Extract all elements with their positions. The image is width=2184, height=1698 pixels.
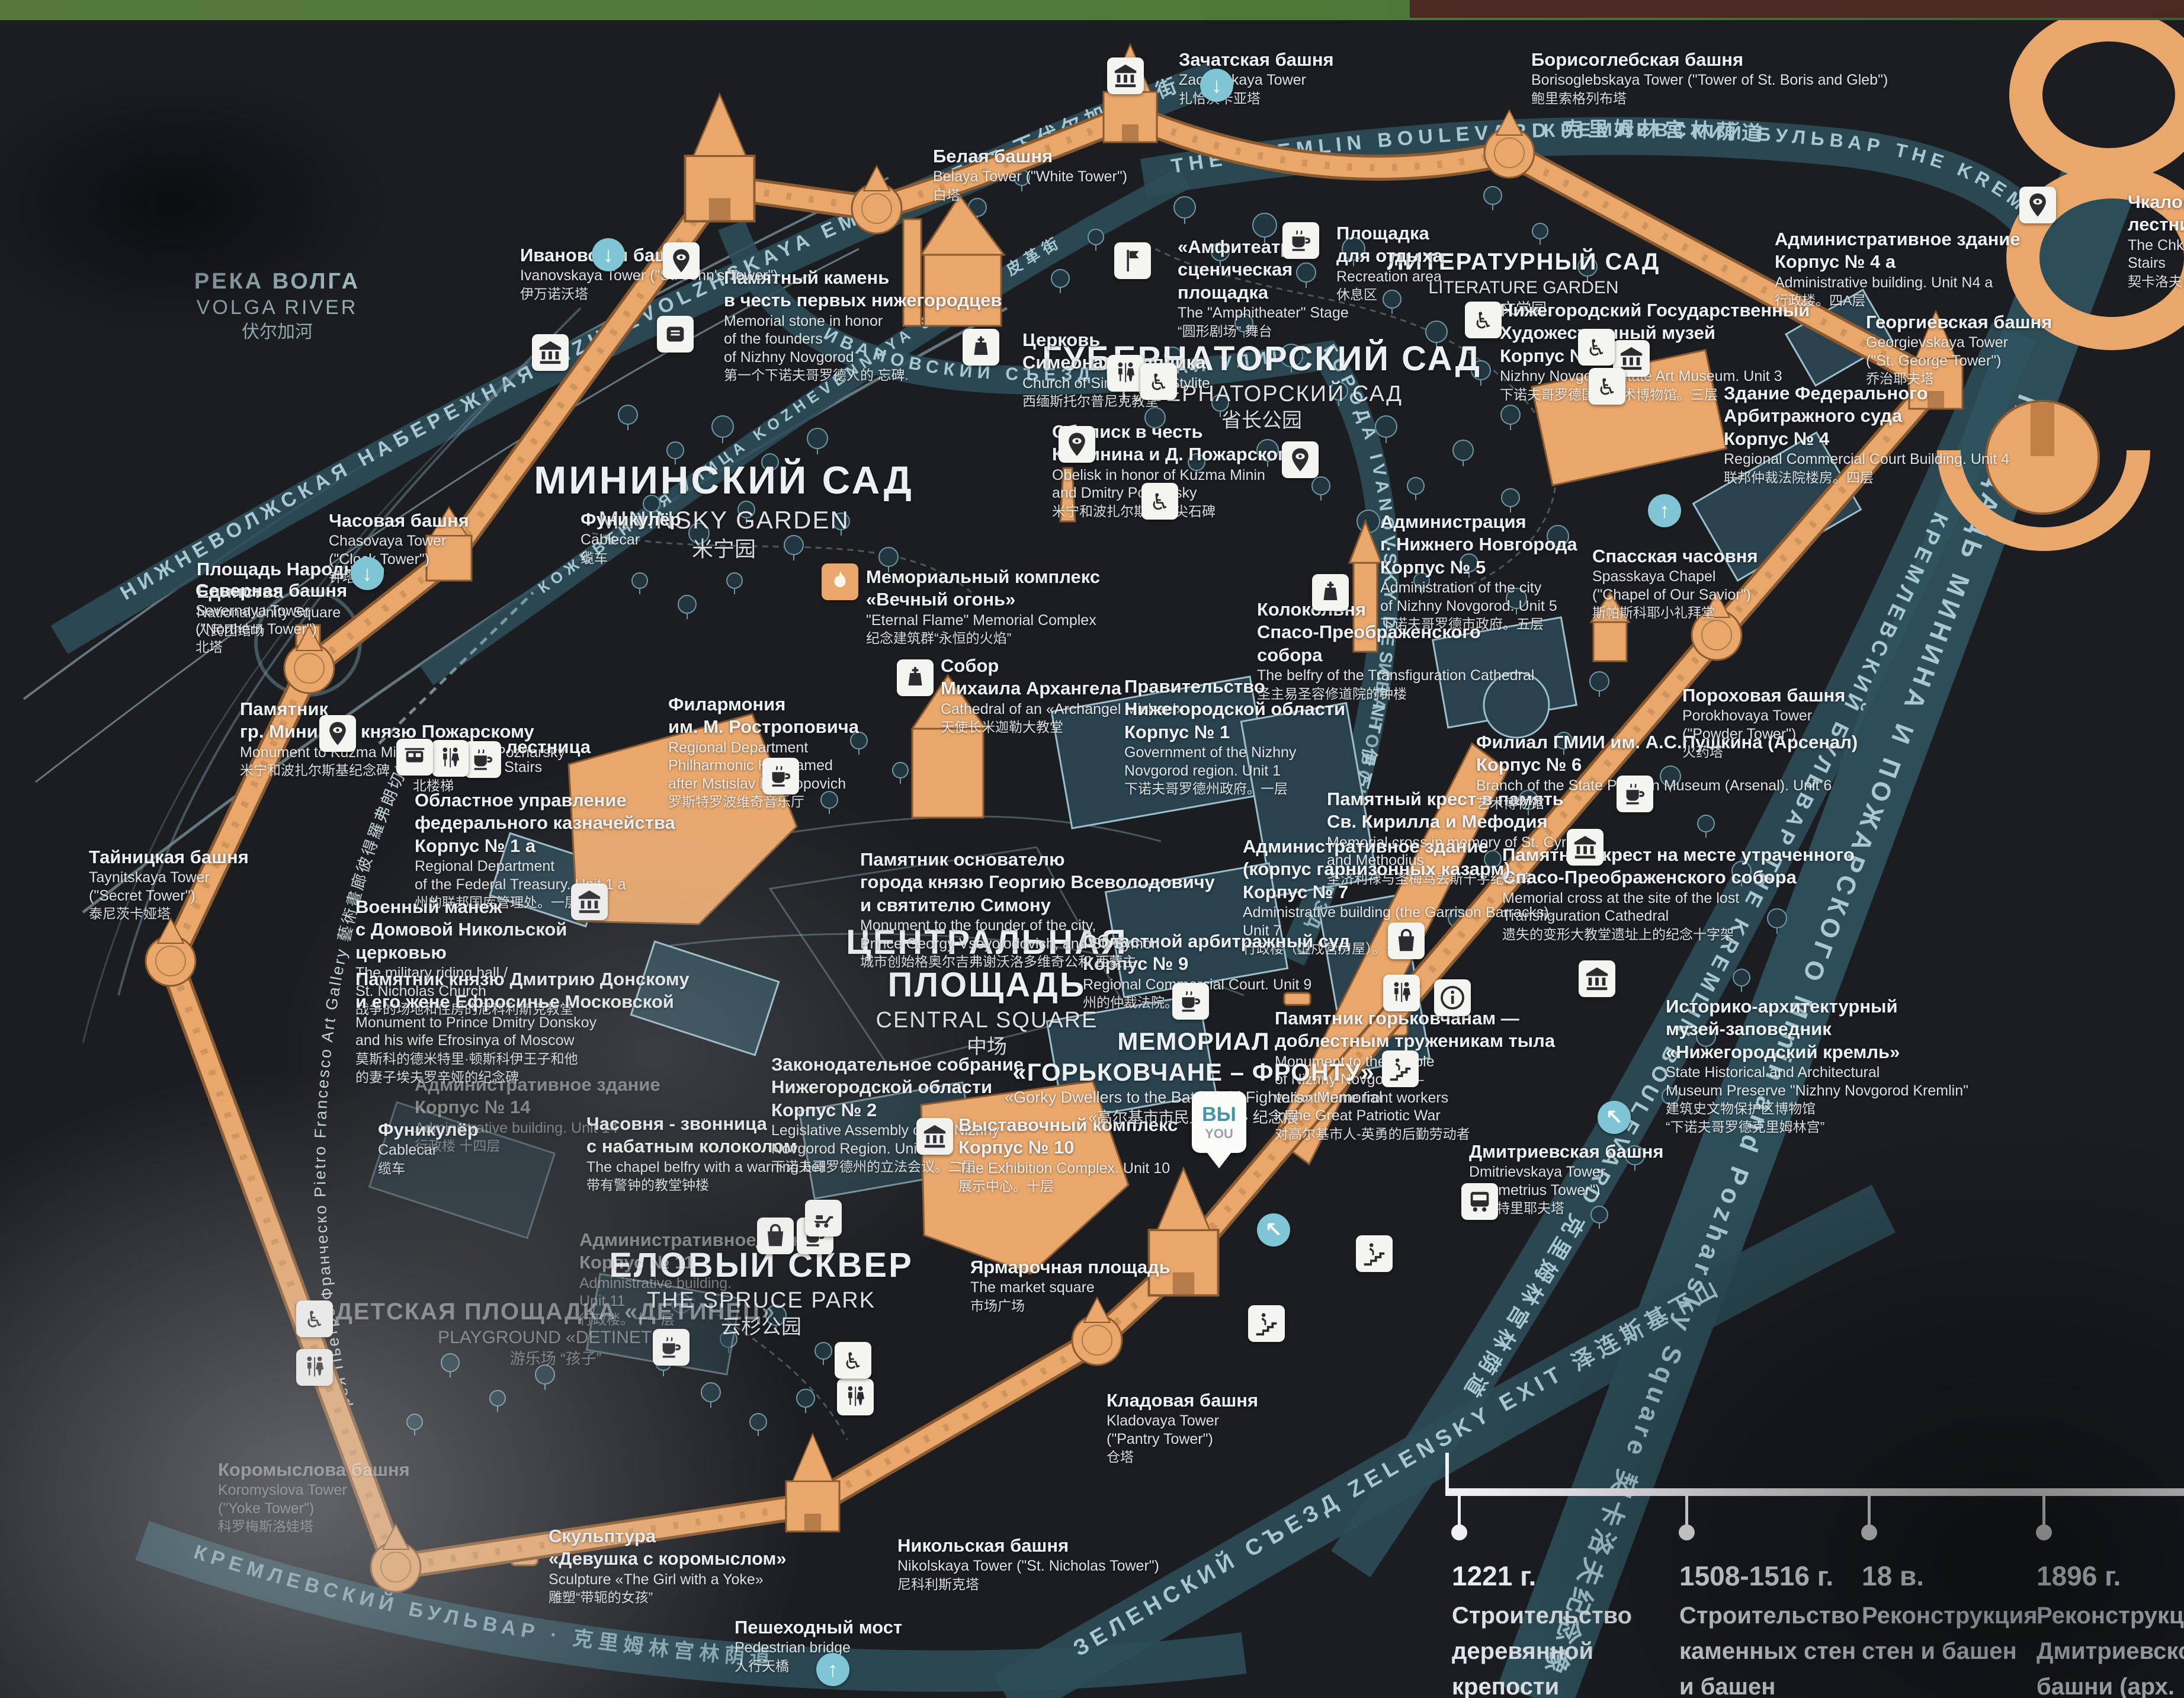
- label-spasskaya-chapel-en: Spasskaya Chapel ("Chapel of Our Savior"…: [1592, 568, 1758, 604]
- direction-arrow-icon: ↓: [351, 557, 384, 590]
- label-borisoglebskaya: Борисоглебская башняBorisoglebskaya Towe…: [1531, 49, 1888, 108]
- label-playground-detinets-zh: 游乐场 “孩子”: [335, 1348, 775, 1369]
- label-zachatskaya-ru: Зачатская башня: [1179, 49, 1334, 71]
- label-amphitheater-stage-en: The "Amphitheater" Stage: [1178, 304, 1349, 322]
- museum-icon: [1567, 829, 1603, 866]
- label-monument-donskoy: Памятник князю Дмитрию Донскому и его же…: [355, 968, 689, 1087]
- label-admin-building-14-ru: Административное здание Корпус № 14: [415, 1074, 660, 1119]
- label-pushkin-museum-branch-en: Branch of the State Pushkin Museum (Arse…: [1476, 777, 1858, 795]
- label-market-square-en: The market square: [970, 1279, 1170, 1297]
- label-belaya-ru: Белая башня: [933, 145, 1127, 168]
- pin-icon: [1059, 426, 1095, 463]
- label-porokhovaya: Пороховая башняPorokhovaya Tower ("Powde…: [1682, 684, 1845, 761]
- label-amphitheater-stage: «Амфитеатр» сценическая площадкаThe "Amp…: [1178, 236, 1349, 341]
- church-icon: [897, 659, 934, 696]
- label-philharmonic-rostropovich-zh: 罗斯特罗波维奇音乐厅: [668, 793, 859, 811]
- label-pedestrian-bridge-ru: Пешеходный мост: [735, 1616, 902, 1639]
- label-museum-preserve-kremlin: Историко-архитектурный музей-заповедник …: [1666, 995, 1968, 1136]
- label-dmitrievskaya-ru: Дмитриевская башня: [1469, 1140, 1664, 1163]
- label-government-unit1: Правительство Нижегородской области Корп…: [1124, 675, 1345, 798]
- label-funicular-lower: ФуникулёрCablecar缆车: [581, 508, 681, 568]
- label-sculpture-girl-yoke: Скульптура «Девушка с коромыслом»Sculptu…: [549, 1525, 787, 1607]
- bag-icon: [1388, 922, 1425, 959]
- pin-icon: [663, 242, 700, 279]
- wc-icon: [1107, 355, 1144, 392]
- label-federal-court-4-en: Regional Commercial Court Building. Unit…: [1724, 450, 2009, 469]
- cart-icon: [805, 1200, 842, 1236]
- label-admin-building-4a-ru: Административное здание Корпус № 4 а: [1775, 228, 2021, 274]
- wc-icon: [296, 1349, 333, 1386]
- label-chasovaya-ru: Часовая башня: [329, 510, 469, 532]
- label-recreation-area: Площадка для отдыхаRecreation area休息区: [1336, 222, 1443, 304]
- you-are-here-marker: ВЫ YOU: [1192, 1091, 1246, 1168]
- label-federal-court-4: Здание Федерального Арбитражного суда Ко…: [1724, 382, 2009, 487]
- label-federal-court-4-ru: Здание Федерального Арбитражного суда Ко…: [1724, 382, 2009, 450]
- label-funicular-lower-ru: Фуникулёр: [581, 508, 681, 531]
- label-koromyslova: Коромыслова башняKoromyslova Tower ("Yok…: [218, 1459, 410, 1536]
- cup-icon: [1282, 222, 1319, 259]
- label-monument-founder-zh: 城市创始格奥尔吉弗谢沃洛多维奇公和 西蒙主: [860, 953, 1215, 971]
- label-belaya-zh: 白塔: [933, 186, 1127, 204]
- label-government-unit1-en: Government of the Nizhny Novgorod region…: [1124, 744, 1345, 780]
- label-chasovaya: Часовая башняChasovaya Tower ("Clock Tow…: [329, 510, 469, 587]
- church-icon: [963, 329, 999, 366]
- label-funicular-upper-zh: 缆车: [378, 1159, 479, 1178]
- svg-text:♿: ♿: [843, 1348, 863, 1374]
- timeline-text: Строительство деревянной крепости: [1452, 1598, 1632, 1698]
- label-memorial-cross-lost-zh: 遗失的变形大教堂遗址上的纪念十字架: [1502, 925, 1855, 944]
- church-icon: [1312, 574, 1349, 611]
- cup-icon: [1617, 776, 1653, 812]
- label-belaya: Белая башняBelaya Tower ("White Tower")白…: [933, 145, 1127, 204]
- label-georgievskaya-zh: 乔治耶夫塔: [1866, 370, 2052, 388]
- label-pedestrian-bridge-en: Pedestrian bridge: [735, 1639, 902, 1657]
- label-georgievskaya-en: Georgievskaya Tower ("St. George Tower"): [1866, 334, 2052, 370]
- label-admin-building-4a: Административное здание Корпус № 4 аAdmi…: [1775, 228, 2021, 310]
- label-porokhovaya-en: Porokhovaya Tower ("Powder Tower"): [1682, 707, 1845, 743]
- direction-arrow-icon: ↑: [1648, 494, 1681, 527]
- label-volga-river-zh: 伏尔加河: [194, 321, 360, 345]
- label-kladovaya-ru: Кладовая башня: [1107, 1389, 1258, 1412]
- label-spasskaya-chapel: Спасская часовняSpasskaya Chapel ("Chape…: [1592, 545, 1758, 622]
- label-recreation-area-ru: Площадка для отдыха: [1336, 222, 1443, 268]
- museum-icon: [1579, 960, 1615, 997]
- info-icon: [1434, 979, 1471, 1016]
- person-stairs-icon: [1382, 1050, 1419, 1087]
- label-admin-building-14-en: Administrative building. Unit 14: [415, 1119, 660, 1138]
- person-stairs-icon: [1356, 1235, 1393, 1272]
- label-nikolskaya-ru: Никольская башня: [897, 1534, 1159, 1557]
- label-market-square: Ярмарочная площадьThe market square市场广场: [970, 1256, 1170, 1315]
- stone-icon: [657, 316, 694, 353]
- label-military-manege-ru: Военный манеж с Домовой Никольской церко…: [355, 896, 573, 964]
- tram-icon: [396, 739, 433, 776]
- label-memorial-stone-zh: 第一个下诺夫哥罗德人的 忘碑.: [724, 366, 1002, 385]
- label-memorial-stone-en: Memorial stone in honor of the founders …: [724, 312, 1002, 367]
- label-pushkin-museum-branch-zh: 艺术博物馆: [1476, 794, 1858, 813]
- label-memorial-cross-lost-en: Memorial cross at the site of the lost T…: [1502, 889, 1855, 925]
- pin-icon: [1282, 441, 1319, 478]
- svg-text:♿: ♿: [1150, 489, 1170, 515]
- tower-nikolskaya: [786, 1434, 839, 1532]
- label-kladovaya-en: Kladovaya Tower ("Pantry Tower"): [1107, 1412, 1258, 1448]
- wheelchair-icon: ♿: [835, 1342, 871, 1379]
- wheelchair-icon: ♿: [1140, 363, 1177, 400]
- label-chkalov-stairs: Чкаловская лестницаThe Chkalov Stairs契卡洛…: [2128, 191, 2184, 291]
- label-kladovaya-zh: 仓塔: [1107, 1448, 1258, 1466]
- wc-icon: [837, 1379, 874, 1415]
- label-government-unit1-ru: Правительство Нижегородской области Корп…: [1124, 675, 1345, 744]
- label-museum-preserve-kremlin-ru: Историко-архитектурный музей-заповедник …: [1666, 995, 1968, 1063]
- tower-ivanovskaya: [685, 94, 755, 222]
- timeline-date: 1896 г.: [2037, 1560, 2121, 1592]
- label-borisoglebskaya-zh: 鲍里索格列布塔: [1531, 89, 1888, 108]
- wheelchair-icon: ♿: [1578, 329, 1615, 366]
- foliage-strip: [1410, 0, 2184, 18]
- you-are-here-ru: ВЫ: [1202, 1103, 1236, 1126]
- label-market-square-zh: 市场广场: [970, 1297, 1170, 1315]
- label-koromyslova-zh: 科罗梅斯洛娃塔: [218, 1517, 410, 1536]
- flag-icon: [1114, 242, 1151, 279]
- label-borisoglebskaya-ru: Борисоглебская башня: [1531, 49, 1888, 71]
- label-eternal-flame: Мемориальный комплекс «Вечный огонь»"Ete…: [866, 566, 1100, 648]
- direction-arrow-icon: ↓: [1200, 69, 1233, 102]
- label-recreation-area-zh: 休息区: [1336, 286, 1443, 304]
- label-ivanovskaya-zh: 伊万诺沃塔: [520, 285, 778, 303]
- label-federal-court-4-zh: 联邦仲裁法院楼房。四层: [1724, 469, 2009, 487]
- label-chapel-belfry-zh: 带有警钟的教堂钟楼: [586, 1176, 826, 1194]
- direction-arrow-icon: ↖: [1257, 1213, 1290, 1247]
- label-amphitheater-stage-zh: “圆形剧场” 舞台: [1178, 322, 1349, 341]
- label-government-unit1-zh: 下诺夫哥罗德州政府。一层: [1124, 780, 1345, 798]
- label-museum-preserve-kremlin-zh: 建筑史文物保护区博物馆 “下诺夫哥罗德克里姆林宫”: [1666, 1100, 1968, 1136]
- cup-icon: [653, 1329, 689, 1366]
- label-volga-river-en: VOLGA RIVER: [194, 296, 360, 320]
- label-art-museum-unit3-ru: Нижегородский Государственный Художестве…: [1500, 299, 1810, 367]
- label-nikolskaya: Никольская башняNikolskaya Tower ("St. N…: [897, 1534, 1159, 1594]
- label-taynitskaya-zh: 泰尼茨卡娅塔: [89, 905, 249, 923]
- label-mininsky-garden-ru: МИНИНСКИЙ САД: [534, 456, 914, 505]
- label-taynitskaya-en: Taynitskaya Tower ("Secret Tower"): [89, 869, 249, 905]
- label-exhibition-complex-10-en: The Exhibition Complex. Unit 10: [958, 1159, 1178, 1178]
- label-admin-building-11-zh: 行政楼。十一层: [579, 1311, 825, 1329]
- label-funicular-lower-en: Cablecar: [581, 531, 681, 549]
- svg-text:♿: ♿: [1586, 335, 1606, 361]
- timeline-date: 18 в.: [1862, 1560, 1924, 1592]
- direction-arrow-icon: ↑: [816, 1653, 849, 1686]
- museum-icon: [916, 1118, 953, 1155]
- direction-arrow-icon: ↖: [1598, 1101, 1631, 1134]
- label-ivanovskaya-ru: Ивановская башня: [520, 244, 778, 267]
- label-monument-donskoy-ru: Памятник князю Дмитрию Донскому и его же…: [355, 968, 689, 1014]
- wheelchair-icon: ♿: [1141, 483, 1178, 520]
- label-chkalov-stairs-zh: 契卡洛夫台阶: [2128, 273, 2184, 291]
- label-church-simeon-zh: 西缅斯托尔普尼克教堂: [1022, 392, 1210, 411]
- label-memorial-cross-lost-ru: Памятный крест на месте утраченного Спас…: [1502, 844, 1855, 889]
- label-monument-founder-en: Monument to the founder of the city, Pri…: [860, 917, 1215, 953]
- label-koromyslova-ru: Коромыслова башня: [218, 1459, 410, 1481]
- label-dmitrievskaya-zh: 德米特里耶夫塔: [1469, 1199, 1664, 1218]
- svg-text:♿: ♿: [1149, 369, 1169, 395]
- label-admin-building-14-zh: 行政楼 十四层: [415, 1137, 660, 1155]
- label-chasovaya-zh: 钟塔: [329, 568, 469, 587]
- label-exhibition-complex-10-zh: 展示中心。十层: [958, 1177, 1178, 1196]
- label-kladovaya: Кладовая башняKladovaya Tower ("Pantry T…: [1107, 1389, 1258, 1466]
- label-severnaya: Северная башняSevernaya Tower ("Northern…: [195, 579, 347, 656]
- wheelchair-icon: ♿: [296, 1300, 333, 1337]
- label-taynitskaya-ru: Тайницкая башня: [89, 846, 249, 869]
- label-koromyslova-en: Koromyslova Tower ("Yoke Tower"): [218, 1481, 410, 1517]
- kremlin-map-board: НИЖНЕВОЛЖСКАЯ НАБЕРЕЖНАЯ NIZHNEVOLZHSKAY…: [0, 0, 2184, 1698]
- label-amphitheater-stage-ru: «Амфитеатр» сценическая площадка: [1178, 236, 1349, 304]
- pin-icon: [319, 715, 356, 752]
- you-are-here-en: YOU: [1205, 1126, 1233, 1142]
- label-museum-preserve-kremlin-en: State Historical and Architectural Museu…: [1666, 1063, 1968, 1100]
- label-chkalov-stairs-ru: Чкаловская лестница: [2128, 191, 2184, 236]
- wc-icon: [1383, 975, 1420, 1011]
- label-porokhovaya-zh: 火药塔: [1682, 743, 1845, 761]
- bag-icon: [757, 1218, 794, 1254]
- label-admin-building-4a-zh: 行政楼。四A层: [1775, 291, 2021, 310]
- label-severnaya-en: Severnaya Tower ("Northern Tower"): [195, 602, 347, 638]
- label-porokhovaya-ru: Пороховая башня: [1682, 684, 1845, 707]
- label-sculpture-girl-yoke-zh: 雕塑“带轭的女孩”: [549, 1588, 787, 1607]
- cup-icon: [1172, 983, 1209, 1020]
- label-admin-building-7-ru: Административное здание (корпус гарнизон…: [1243, 835, 1553, 904]
- wheelchair-icon: ♿: [1465, 302, 1502, 338]
- label-chasovaya-en: Chasovaya Tower ("Clock Tower"): [329, 532, 469, 568]
- label-nikolskaya-zh: 尼科利斯克塔: [897, 1575, 1159, 1594]
- label-chkalov-stairs-en: The Chkalov Stairs: [2128, 236, 2184, 273]
- label-taynitskaya: Тайницкая башняTaynitskaya Tower ("Secre…: [89, 846, 249, 923]
- cup-icon: [762, 758, 799, 794]
- label-philharmonic-rostropovich: Филармония им. М. РостроповичаRegional D…: [668, 693, 859, 811]
- timeline-date: 1221 г.: [1452, 1560, 1536, 1592]
- label-georgievskaya-ru: Георгиевская башня: [1866, 311, 2052, 334]
- label-treasury-unit1a: Областное управление федерального казнач…: [415, 789, 675, 912]
- direction-arrow-icon: ↓: [592, 238, 625, 271]
- label-severnaya-ru: Северная башня: [195, 579, 347, 602]
- svg-text:♿: ♿: [1597, 374, 1617, 400]
- label-philharmonic-rostropovich-ru: Филармония им. М. Ростроповича: [668, 693, 859, 739]
- timeline-text: Реконструкция Дмитриевской башни (арх. Н…: [2037, 1598, 2184, 1698]
- label-city-administration-5-ru: Администрация г. Нижнего Новгорода Корпу…: [1380, 511, 1577, 579]
- bus-icon: [1461, 1183, 1498, 1220]
- label-sculpture-girl-yoke-en: Sculpture «The Girl with a Yoke»: [549, 1571, 787, 1589]
- museum-icon: [571, 883, 608, 920]
- label-georgievskaya: Георгиевская башняGeorgievskaya Tower ("…: [1866, 311, 2052, 388]
- label-memorial-cross-lost: Памятный крест на месте утраченного Спас…: [1502, 844, 1855, 944]
- svg-text:♿: ♿: [304, 1306, 325, 1332]
- svg-text:♿: ♿: [1473, 307, 1493, 334]
- museum-icon: [532, 334, 569, 371]
- label-belaya-en: Belaya Tower ("White Tower"): [933, 168, 1127, 186]
- label-spasskaya-chapel-zh: 斯帕斯科耶小礼拜堂: [1592, 604, 1758, 622]
- label-monument-founder: Памятник основателю города князю Георгию…: [860, 848, 1215, 971]
- label-ivanovskaya-en: Ivanovskaya Tower ("St. John's Tower"): [520, 267, 778, 285]
- label-admin-building-4a-en: Administrative building. Unit N4 a: [1775, 274, 2021, 292]
- label-market-square-ru: Ярмарочная площадь: [970, 1256, 1170, 1279]
- label-ivanovskaya: Ивановская башняIvanovskaya Tower ("St. …: [520, 244, 778, 303]
- label-legislative-assembly-2-ru: Законодательное собрание Нижегородской о…: [771, 1053, 1024, 1122]
- label-monument-founder-ru: Памятник основателю города князю Георгию…: [860, 848, 1215, 917]
- label-eternal-flame-ru: Мемориальный комплекс «Вечный огонь»: [866, 566, 1100, 611]
- label-borisoglebskaya-en: Borisoglebskaya Tower ("Tower of St. Bor…: [1531, 71, 1888, 89]
- label-memorial-gorky-front-ru: МЕМОРИАЛ «ГОРЬКОВЧАНЕ – ФРОНТУ»: [1005, 1026, 1383, 1088]
- label-eternal-flame-zh: 纪念建筑群“永恒的火焰”: [866, 629, 1100, 648]
- label-monument-donskoy-en: Monument to Prince Dmitry Donskoy and hi…: [355, 1014, 689, 1050]
- label-spasskaya-chapel-ru: Спасская часовня: [1592, 545, 1758, 568]
- label-dmitrievskaya: Дмитриевская башняDmitrievskaya Tower ("…: [1469, 1140, 1664, 1218]
- label-playground-detinets-en: PLAYGROUND «DETINETS»: [335, 1327, 775, 1349]
- timeline-text: Реконструкция стен и башен: [1862, 1598, 2038, 1669]
- timeline-date: 1508-1516 г.: [1679, 1560, 1833, 1592]
- pin-icon: [2019, 187, 2056, 223]
- wheelchair-icon: ♿: [1589, 368, 1625, 405]
- label-eternal-flame-en: "Eternal Flame" Memorial Complex: [866, 611, 1100, 630]
- label-admin-building-14: Административное здание Корпус № 14Admin…: [415, 1074, 660, 1155]
- label-treasury-unit1a-en: Regional Department of the Federal Treas…: [415, 857, 675, 893]
- timeline-text: Строительство каменных стен и башен крем…: [1679, 1598, 1859, 1698]
- flame-icon: [822, 563, 858, 600]
- cup-icon: [464, 741, 501, 778]
- label-volga-river: РЕКА ВОЛГАVOLGA RIVER伏尔加河: [194, 268, 360, 344]
- label-commercial-court-9-en: Regional Commercial Court. Unit 9: [1083, 976, 1350, 994]
- person-stairs-icon: [1248, 1305, 1285, 1342]
- wc-icon: [432, 740, 469, 777]
- museum-icon: [1107, 57, 1144, 94]
- label-funicular-lower-zh: 缆车: [581, 549, 681, 568]
- tower-belaya: [852, 166, 902, 233]
- label-nikolskaya-en: Nikolskaya Tower ("St. Nicholas Tower"): [897, 1557, 1159, 1575]
- label-treasury-unit1a-ru: Областное управление федерального казнач…: [415, 789, 675, 857]
- label-severnaya-zh: 北塔: [195, 638, 347, 656]
- label-dmitrievskaya-en: Dmitrievskaya Tower ("Demetrius Tower"): [1469, 1163, 1664, 1199]
- label-sculpture-girl-yoke-ru: Скульптура «Девушка с коромыслом»: [549, 1525, 787, 1571]
- label-volga-river-ru: РЕКА ВОЛГА: [194, 268, 360, 296]
- label-admin-building-11-en: Administrative building. Unit 11: [579, 1274, 825, 1311]
- label-recreation-area-en: Recreation area: [1336, 268, 1443, 286]
- label-belfry-transfiguration-ru: Колокольня Спасо-Преображенского собора: [1257, 598, 1534, 667]
